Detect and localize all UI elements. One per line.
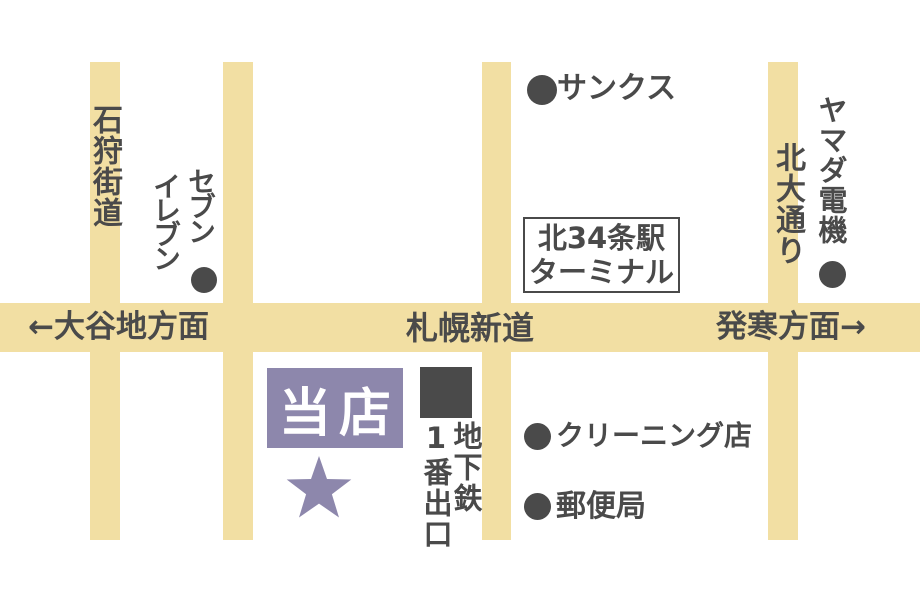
label-yamada-denki: ヤマダ電機: [816, 95, 845, 245]
road-vertical-subway: [482, 62, 511, 540]
store-star-icon: [285, 456, 353, 522]
label-seven-eleven-col1: セブン: [186, 167, 214, 242]
label-direction-oyachi: ←大谷地方面: [28, 312, 209, 343]
label-sunkus: サンクス: [557, 74, 676, 104]
label-sapporo-shindo: 札幌新道: [406, 312, 534, 344]
post-office-marker-dot: [524, 493, 551, 520]
station-terminal-box: 北34条駅 ターミナル: [523, 217, 680, 293]
road-vertical-second: [223, 62, 253, 540]
label-ishikari-kaido: 石狩街道: [89, 104, 119, 228]
station-terminal-line1: 北34条駅: [538, 221, 665, 255]
store-badge-label: 当店: [279, 371, 399, 446]
label-post-office: 郵便局: [556, 492, 646, 522]
label-cleaning-shop: クリーニング店: [556, 422, 752, 450]
sunkus-marker-dot: [527, 75, 557, 105]
cleaning-shop-marker-dot: [524, 423, 551, 450]
subway-exit-marker-square: [420, 367, 472, 418]
label-seven-eleven-col2: イレブン: [151, 172, 179, 268]
label-subway-exit1-col2: 1番出口: [421, 421, 450, 550]
access-map: 石狩街道 北大通り セブン イレブン サンクス 北34条駅 ターミナル ヤマダ電…: [0, 0, 920, 600]
seven-eleven-marker-dot: [191, 267, 217, 293]
label-subway-col1: 地下鉄: [451, 421, 480, 514]
store-badge: 当店: [267, 368, 403, 448]
yamada-denki-marker-dot: [819, 261, 846, 288]
label-direction-hassamu: 発寒方面→: [716, 312, 866, 343]
road-kita-odori: [768, 62, 798, 540]
station-terminal-line2: ターミナル: [529, 255, 674, 289]
label-kita-odori: 北大通り: [772, 142, 802, 266]
